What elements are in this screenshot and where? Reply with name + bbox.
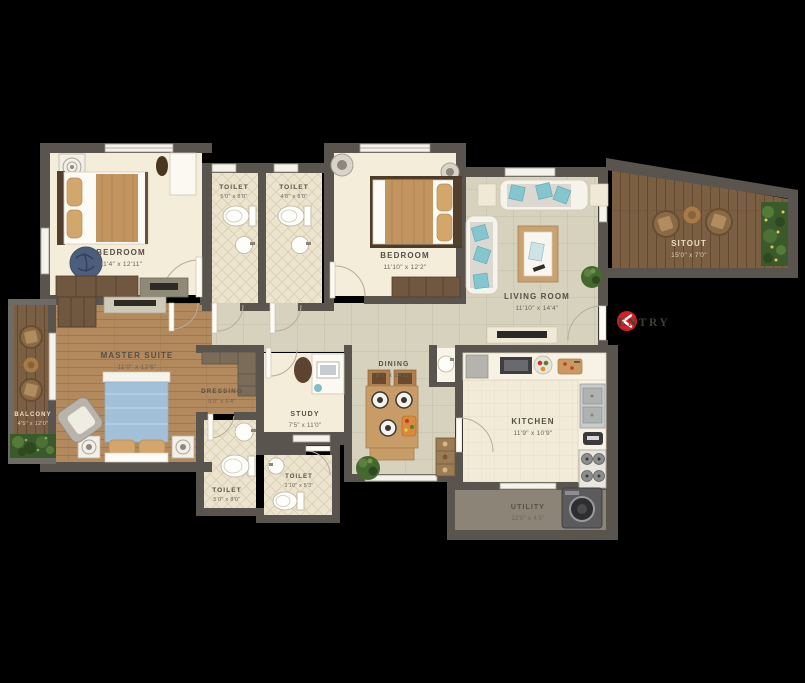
laptop [317, 362, 339, 378]
toilet2-door [270, 303, 275, 333]
desk-chair [294, 357, 312, 383]
master-door [169, 303, 174, 331]
nightstand [172, 436, 194, 458]
plate [380, 420, 396, 436]
room-label: TOILET [285, 474, 313, 480]
rattan-chair [20, 326, 42, 348]
room-label: KITCHEN [511, 417, 554, 426]
room-dims: 15'0" x 7'0" [671, 252, 707, 259]
round-table [683, 206, 701, 224]
desk [170, 153, 196, 195]
pillow [437, 184, 452, 211]
room-dims: 11'4" x 12'11" [100, 261, 143, 268]
room-label: BEDROOM [380, 251, 429, 260]
kitchen-window [500, 483, 556, 489]
wc [278, 206, 311, 226]
room-label: TOILET [279, 184, 309, 191]
stool [156, 156, 168, 176]
veggie-plate [534, 356, 552, 374]
washing-machine [562, 488, 602, 528]
room-label: SITOUT [671, 239, 707, 248]
wardrobe [58, 297, 96, 327]
sofa-three-seater [500, 180, 588, 210]
wash-area [438, 356, 454, 372]
tv [497, 331, 547, 338]
rattan-chair [653, 211, 679, 237]
tv-console [104, 297, 166, 313]
rattan-chair [706, 209, 732, 235]
fridge [466, 355, 488, 378]
planter-strip [10, 434, 56, 458]
toilet1-door [212, 303, 217, 333]
room-dims: 4'8" x 8'0" [280, 194, 307, 200]
wc [273, 492, 304, 510]
room-label: MASTER SUITE [101, 351, 174, 360]
plate [372, 392, 388, 408]
tv [114, 300, 156, 306]
side-table [478, 184, 496, 206]
planter-strip [761, 202, 788, 266]
room-label: UTILITY [511, 504, 545, 511]
food-tray [402, 416, 416, 436]
plant [356, 456, 380, 480]
wc [223, 206, 256, 226]
room-label: DRESSING [201, 388, 243, 395]
room-dims: 5'0" x 8'0" [213, 497, 240, 503]
plate [396, 392, 412, 408]
floor-plan-canvas: BEDROOM 11'4" x 12'11" TOILET 5'0" x 8'0… [0, 0, 805, 683]
room-dims: 11'10" x 12'2" [384, 264, 427, 271]
room-dims: 5'0" x 8'0" [220, 194, 247, 200]
room-label: BEDROOM [96, 248, 145, 257]
room-label: TOILET [219, 184, 249, 191]
kitchen-door [456, 418, 462, 452]
side-table [590, 184, 608, 206]
entry-door [599, 306, 606, 340]
room-label: LIVING ROOM [504, 292, 570, 301]
room-dims: 4'5" x 12'0" [18, 421, 49, 427]
room-dims: 11'0" x 12'6" [117, 364, 156, 371]
room-dims: 8'7" x 14'11" [376, 373, 412, 379]
room-label: TOILET [212, 487, 242, 494]
toilet4-door [306, 446, 330, 451]
decor-item [314, 384, 322, 392]
shelf-niche [436, 438, 455, 476]
bedroom2-door [330, 262, 335, 298]
master-balcony-slider [49, 333, 56, 400]
toilet1-window [212, 164, 236, 172]
room-dims: 11'10" x 14'4" [516, 305, 559, 312]
pillow [437, 214, 452, 241]
room-dims: 7'5" x 11'0" [289, 423, 322, 429]
study-window [293, 435, 330, 442]
room-dims: 3'10" x 5'3" [284, 483, 313, 489]
wc [221, 455, 255, 477]
toilet2-window [274, 164, 298, 172]
cushion [509, 185, 526, 202]
study-door [266, 348, 271, 378]
room-label: DINING [378, 361, 409, 368]
bed [370, 176, 462, 248]
room-dims: 12'0" x 4'5" [511, 516, 544, 522]
toilet3-door [208, 414, 213, 440]
magazine [529, 242, 545, 261]
pillow [67, 178, 82, 206]
sofa-two-seater [466, 216, 498, 294]
sink [580, 384, 605, 428]
coffee-table [518, 226, 558, 282]
room-label: STUDY [290, 411, 319, 418]
cushion [536, 183, 553, 200]
pillow [67, 210, 82, 238]
cushion [473, 273, 489, 289]
room-dims: 11'9" x 10'9" [513, 430, 552, 437]
wardrobe [56, 276, 138, 297]
bedroom1-left-window [41, 228, 49, 274]
room-dims: 5'0" x 5'4" [208, 399, 235, 405]
toilet1-floor [210, 173, 258, 303]
floor-plan-svg: BEDROOM 11'4" x 12'11" TOILET 5'0" x 8'0… [0, 0, 805, 683]
tv-unit [487, 327, 557, 343]
bench [370, 448, 414, 460]
washbasin [268, 458, 284, 474]
plant [581, 266, 603, 288]
room-label: BALCONY [14, 412, 51, 418]
toilet2-floor [266, 173, 322, 303]
bed [57, 171, 148, 245]
rattan-chair [20, 379, 42, 401]
stove [579, 450, 606, 488]
entry-label: ENTRY [618, 317, 670, 329]
tv [150, 283, 178, 290]
living-window [505, 168, 555, 176]
cutting-board [558, 359, 582, 374]
bedroom1-door [196, 257, 202, 297]
